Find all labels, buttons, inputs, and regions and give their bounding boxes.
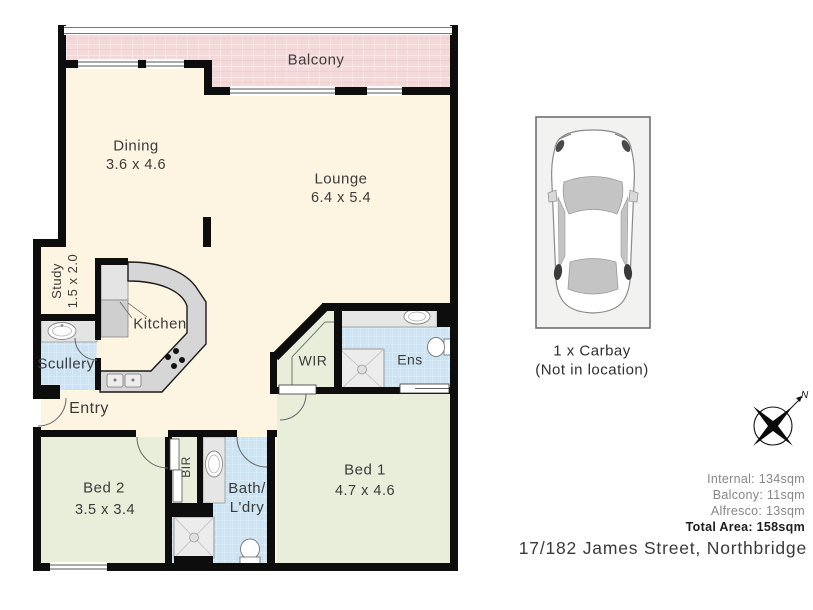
area-balcony: Balcony: 11sqm <box>713 488 805 502</box>
floorplan-page: Balcony Dining 3.6 x 4.6 Lounge 6.4 x 5.… <box>0 0 813 610</box>
ens-label: Ens <box>397 351 423 369</box>
bed2-dims: 3.5 x 3.4 <box>75 501 135 519</box>
compass-north-label: N <box>801 390 808 401</box>
property-address: 17/182 James Street, Northbridge <box>519 538 807 559</box>
wir-label: WIR <box>299 352 328 370</box>
bath-line1: Bath/ <box>228 479 266 498</box>
bath-shower-icon <box>174 517 214 558</box>
balcony-label: Balcony <box>288 52 345 71</box>
carbay-title: 1 x Carbay <box>553 343 631 362</box>
dining-dims: 3.6 x 4.6 <box>106 156 166 174</box>
bed1-dims: 4.7 x 4.6 <box>335 482 395 500</box>
carbay-box <box>536 117 650 328</box>
bir-name: BIR <box>178 456 194 478</box>
study-dims: 1.5 x 2.0 <box>65 254 81 308</box>
car-top-view-icon <box>548 130 638 313</box>
dining-label: Dining <box>113 138 159 157</box>
study-name: Study <box>49 254 65 308</box>
kitchen-label: Kitchen <box>133 316 187 335</box>
bed1-label: Bed 1 <box>344 462 386 481</box>
area-alfresco: Alfresco: 13sqm <box>711 504 805 518</box>
bath-toilet-icon <box>240 539 260 564</box>
compass-icon <box>753 396 802 446</box>
bath-ldry-label: Bath/ L'dry <box>228 479 266 517</box>
lounge-dims: 6.4 x 5.4 <box>311 189 371 207</box>
study-label: Study 1.5 x 2.0 <box>49 254 81 308</box>
carbay-note: (Not in location) <box>535 362 649 381</box>
bath-line2: L'dry <box>228 498 266 517</box>
scullery-bench <box>41 320 97 342</box>
scullery-label: Scullery <box>37 356 94 375</box>
area-total: Total Area: 158sqm <box>686 520 805 534</box>
bed2-label: Bed 2 <box>83 480 125 499</box>
area-internal: Internal: 134sqm <box>707 472 805 486</box>
lounge-label: Lounge <box>314 171 367 190</box>
bir-label: BIR <box>178 456 194 478</box>
entry-label: Entry <box>69 399 109 419</box>
ens-shower-icon <box>340 349 384 390</box>
